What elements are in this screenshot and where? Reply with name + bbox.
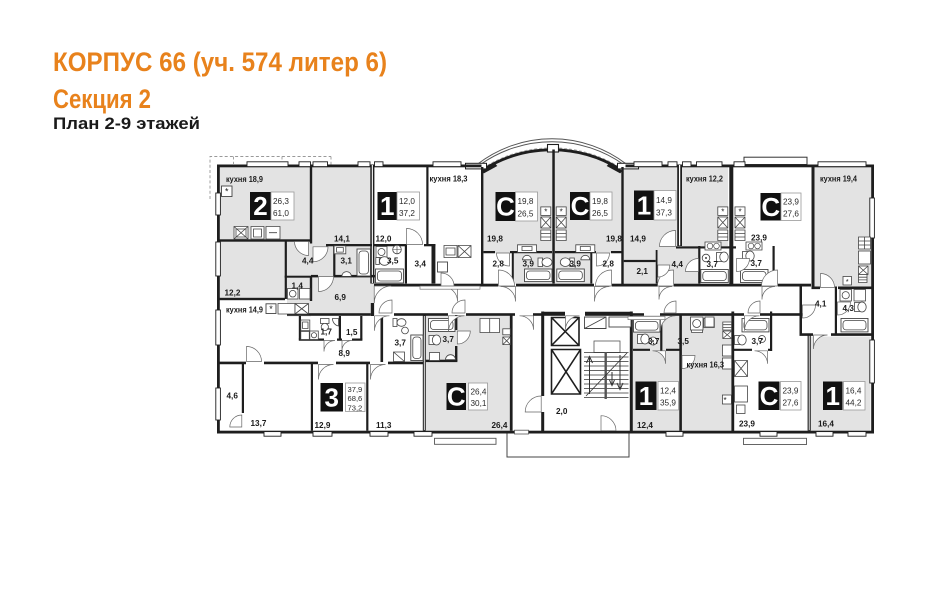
svg-text:кухня 18,9: кухня 18,9 xyxy=(226,174,263,184)
svg-text:2: 2 xyxy=(253,191,267,221)
svg-text:3,7: 3,7 xyxy=(752,337,764,346)
svg-text:2,1: 2,1 xyxy=(637,267,649,276)
svg-text:13,7: 13,7 xyxy=(251,419,267,428)
svg-text:4,1: 4,1 xyxy=(815,300,827,309)
svg-text:1: 1 xyxy=(639,381,653,411)
svg-text:23,9: 23,9 xyxy=(783,198,799,207)
svg-text:кухня 14,9: кухня 14,9 xyxy=(226,305,263,315)
svg-text:кухня 12,2: кухня 12,2 xyxy=(686,174,723,184)
svg-text:1: 1 xyxy=(637,190,651,220)
svg-text:61,0: 61,0 xyxy=(273,209,289,218)
svg-text:23,9: 23,9 xyxy=(783,387,799,396)
svg-text:16,4: 16,4 xyxy=(846,387,862,396)
svg-text:35,9: 35,9 xyxy=(660,399,676,408)
svg-text:12,9: 12,9 xyxy=(315,421,331,430)
svg-text:*: * xyxy=(225,187,229,197)
svg-text:кухня 18,3: кухня 18,3 xyxy=(430,174,468,184)
svg-text:*: * xyxy=(721,208,724,217)
svg-text:3,1: 3,1 xyxy=(341,257,353,266)
svg-text:4,4: 4,4 xyxy=(302,257,314,266)
svg-text:26,3: 26,3 xyxy=(273,197,289,206)
svg-text:30,1: 30,1 xyxy=(471,399,487,408)
svg-text:14,9: 14,9 xyxy=(656,196,672,205)
svg-text:1: 1 xyxy=(380,191,394,221)
svg-text:3,7: 3,7 xyxy=(707,260,719,269)
svg-text:3,7: 3,7 xyxy=(751,259,763,268)
svg-text:кухня 16,3: кухня 16,3 xyxy=(687,360,725,370)
svg-text:37,9: 37,9 xyxy=(348,385,363,394)
svg-text:12,0: 12,0 xyxy=(399,197,415,206)
svg-text:С: С xyxy=(571,191,590,221)
svg-text:6,9: 6,9 xyxy=(335,293,347,302)
svg-text:2,8: 2,8 xyxy=(603,260,615,269)
svg-text:12,4: 12,4 xyxy=(660,387,676,396)
svg-text:19,8: 19,8 xyxy=(592,197,608,206)
svg-text:План 2-9 этажей: План 2-9 этажей xyxy=(53,114,200,133)
svg-text:3,7: 3,7 xyxy=(443,335,455,344)
svg-text:Секция 2: Секция 2 xyxy=(53,84,151,114)
svg-text:*: * xyxy=(738,208,741,217)
svg-text:4,3: 4,3 xyxy=(843,304,855,313)
svg-text:73,2: 73,2 xyxy=(348,403,363,412)
svg-text:14,9: 14,9 xyxy=(630,235,646,244)
svg-text:*: * xyxy=(560,208,563,217)
svg-text:1,7: 1,7 xyxy=(321,328,333,337)
svg-text:3,7: 3,7 xyxy=(648,337,660,346)
svg-text:23,9: 23,9 xyxy=(739,420,755,429)
svg-text:С: С xyxy=(447,382,466,412)
svg-text:4,4: 4,4 xyxy=(672,260,684,269)
svg-text:*: * xyxy=(846,277,849,286)
svg-text:19,8: 19,8 xyxy=(518,197,534,206)
svg-text:3,5: 3,5 xyxy=(678,337,690,346)
svg-text:3,4: 3,4 xyxy=(415,260,427,269)
svg-text:3,9: 3,9 xyxy=(570,260,582,269)
svg-text:КОРПУС 66 (уч. 574 литер 6): КОРПУС 66 (уч. 574 литер 6) xyxy=(53,47,387,77)
svg-text:12,4: 12,4 xyxy=(637,421,653,430)
svg-text:3: 3 xyxy=(325,382,339,412)
svg-text:1,5: 1,5 xyxy=(346,328,358,337)
svg-text:37,3: 37,3 xyxy=(656,209,672,218)
svg-text:68,6: 68,6 xyxy=(348,394,363,403)
svg-text:26,5: 26,5 xyxy=(592,209,608,218)
svg-text:1,4: 1,4 xyxy=(292,282,304,291)
svg-text:26,4: 26,4 xyxy=(471,387,487,396)
svg-text:27,6: 27,6 xyxy=(783,209,799,218)
svg-text:19,8: 19,8 xyxy=(487,235,503,244)
svg-text:12,0: 12,0 xyxy=(376,235,392,244)
svg-text:3,9: 3,9 xyxy=(523,260,535,269)
svg-text:*: * xyxy=(544,208,547,217)
svg-text:14,1: 14,1 xyxy=(334,235,350,244)
svg-text:2,0: 2,0 xyxy=(556,407,568,416)
svg-text:8,9: 8,9 xyxy=(339,349,351,358)
svg-text:44,2: 44,2 xyxy=(846,399,862,408)
svg-text:*: * xyxy=(269,304,273,314)
svg-text:11,3: 11,3 xyxy=(376,421,392,430)
svg-text:С: С xyxy=(760,381,779,411)
svg-text:С: С xyxy=(761,192,780,222)
svg-text:1: 1 xyxy=(826,381,840,411)
svg-text:3,7: 3,7 xyxy=(395,339,407,348)
svg-text:16,4: 16,4 xyxy=(818,420,834,429)
svg-text:С: С xyxy=(496,192,515,222)
svg-text:2,8: 2,8 xyxy=(493,260,505,269)
svg-text:26,4: 26,4 xyxy=(492,421,508,430)
svg-text:37,2: 37,2 xyxy=(399,209,415,218)
svg-text:19,8: 19,8 xyxy=(606,235,622,244)
svg-text:23,9: 23,9 xyxy=(751,234,767,243)
svg-text:4,6: 4,6 xyxy=(227,392,239,401)
svg-text:12,2: 12,2 xyxy=(225,289,241,298)
svg-text:3,5: 3,5 xyxy=(387,257,399,266)
svg-text:кухня 19,4: кухня 19,4 xyxy=(820,174,857,184)
svg-text:27,6: 27,6 xyxy=(783,399,799,408)
svg-text:26,5: 26,5 xyxy=(518,210,534,219)
svg-text:*: * xyxy=(723,396,726,405)
